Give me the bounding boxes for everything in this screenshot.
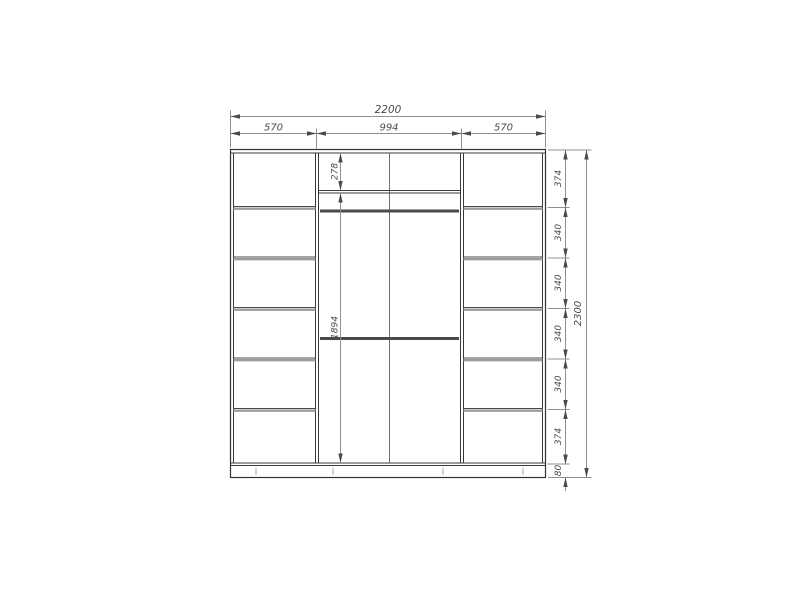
dim-label-right-3: 340: [554, 274, 564, 291]
dim-label-plinth: 80: [554, 465, 564, 477]
wardrobe-technical-drawing: 2200570994570374340340340340374802300278…: [0, 0, 800, 600]
cabinet-outline: [231, 150, 546, 478]
dim-label-right-1: 374: [554, 170, 564, 187]
dim-label-middle-bottom: 1894: [331, 316, 341, 339]
dim-label-right-6: 374: [554, 428, 564, 445]
dim-label-middle-top: 278: [331, 163, 341, 180]
drawing-canvas: 2200570994570374340340340340374802300278…: [0, 0, 800, 600]
dim-label-section-middle: 994: [379, 123, 398, 134]
dim-label-overall-height: 2300: [573, 301, 584, 326]
dimension-lines: [231, 111, 592, 492]
dimension-labels: 2200570994570374340340340340374802300278…: [264, 104, 584, 476]
dim-label-section-left: 570: [264, 123, 283, 134]
dim-label-right-5: 340: [554, 375, 564, 392]
dim-label-overall-width: 2200: [375, 104, 402, 116]
dim-label-right-4: 340: [554, 325, 564, 342]
dim-label-right-2: 340: [554, 224, 564, 241]
dim-label-section-right: 570: [494, 123, 513, 134]
cabinet-body: [231, 150, 546, 478]
